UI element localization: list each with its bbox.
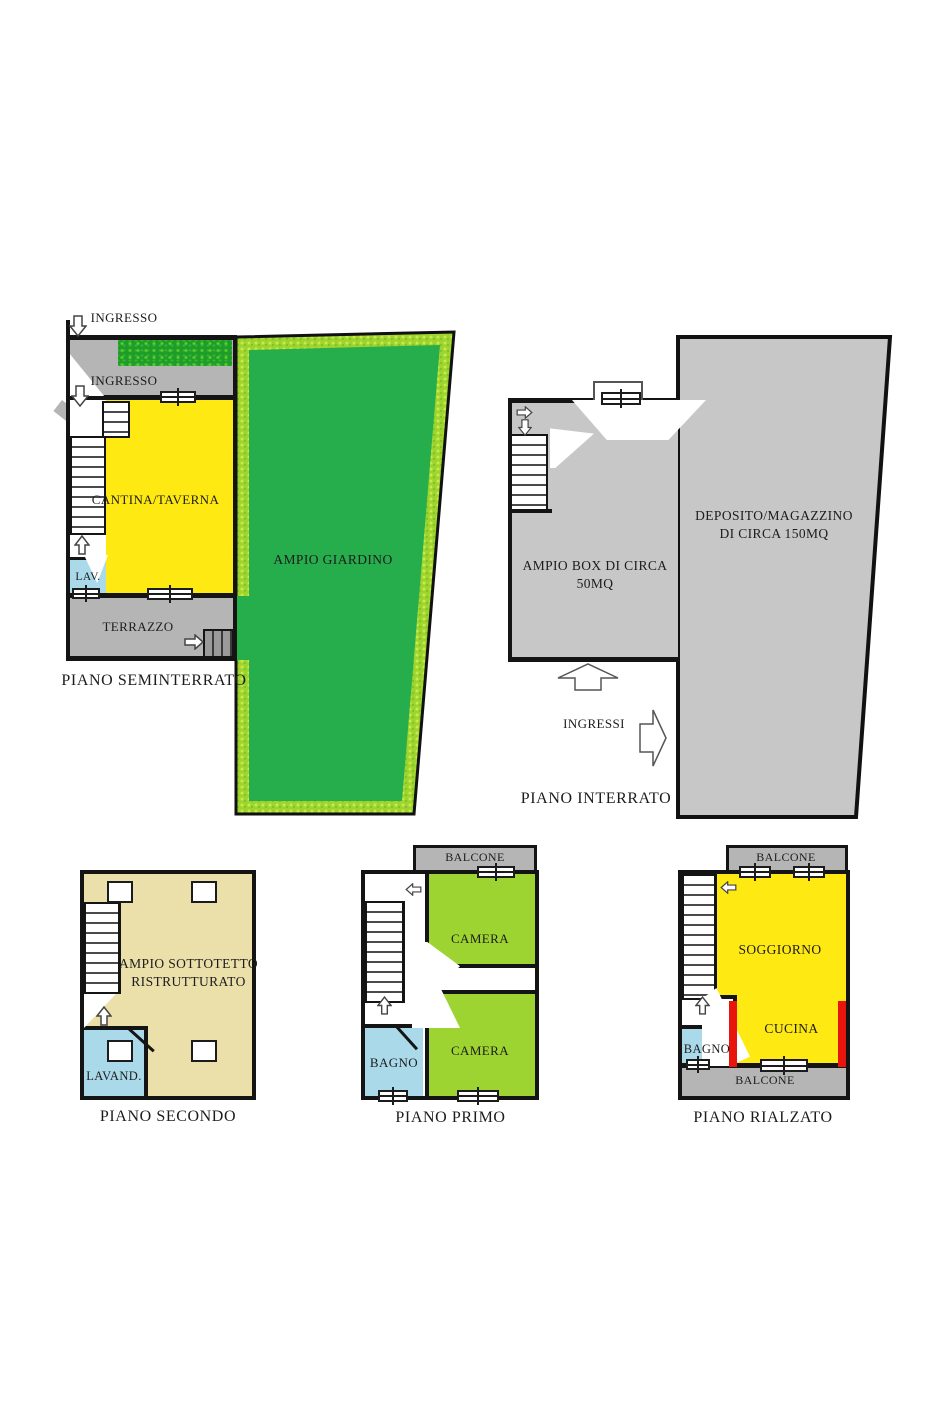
- hedge-strip: [118, 340, 232, 366]
- label-piano-secondo: PIANO SECONDO: [77, 1107, 259, 1128]
- room-giardino-label: AMPIO GIARDINO: [268, 551, 398, 569]
- room-deposito-label: DEPOSITO/MAGAZZINO DI CIRCA 150MQ: [688, 507, 860, 542]
- roof-window: [107, 1040, 133, 1062]
- balcone-rialzato-bottom-label: BALCONE: [700, 1073, 830, 1089]
- room-lav-label: LAV.: [66, 570, 110, 585]
- ingresso-lower-label: INGRESSO: [90, 373, 158, 390]
- ingressi-label: INGRESSI: [558, 716, 630, 733]
- window-symbol: [147, 588, 193, 600]
- staircase-box: [510, 434, 548, 511]
- staircase-main: [70, 436, 106, 535]
- terrace-garden-steps: [203, 629, 234, 658]
- staircase-upper-flight: [102, 401, 130, 438]
- stairs-up-arrow-icon: [695, 996, 710, 1015]
- room-camera-upper-label: CAMERA: [434, 931, 526, 948]
- window-symbol: [160, 391, 196, 403]
- window-symbol: [686, 1059, 710, 1070]
- room-bagno-primo-label: BAGNO: [363, 1055, 425, 1072]
- room-lavanderia-label: LAVAND.: [80, 1068, 148, 1084]
- label-piano-seminterrato: PIANO SEMINTERRATO: [60, 671, 248, 692]
- terrace-arrow-right-icon: [184, 634, 204, 650]
- window-symbol: [477, 866, 515, 878]
- room-camera-lower-label: CAMERA: [434, 1043, 526, 1060]
- deposito-area: [672, 329, 896, 821]
- room-bagno-rialzato-label: BAGNO: [676, 1041, 738, 1057]
- roof-window: [107, 881, 133, 903]
- balcony-arrow-left-icon: [405, 883, 422, 896]
- room-soggiorno-label: SOGGIORNO: [718, 941, 842, 959]
- stairs-up-arrow-icon: [74, 535, 90, 555]
- roof-window: [191, 1040, 217, 1062]
- ingresso-lower-arrow-down-icon: [71, 385, 89, 407]
- garden-area: [233, 329, 459, 817]
- window-symbol: [760, 1059, 808, 1072]
- label-piano-interrato: PIANO INTERRATO: [512, 789, 680, 810]
- room-sottotetto-label: AMPIO SOTTOTETTO RISTRUTTURATO: [106, 955, 271, 990]
- box-arrow-right-icon: [516, 406, 533, 419]
- entry-arrow-right-icon: [638, 708, 668, 768]
- window-symbol: [457, 1090, 499, 1102]
- window-symbol: [601, 392, 641, 405]
- stairs-up-arrow-icon: [96, 1006, 112, 1026]
- staircase-rialzato: [682, 874, 717, 1000]
- room-box-label: AMPIO BOX DI CIRCA 50MQ: [512, 557, 678, 592]
- balcone-primo-label: BALCONE: [427, 850, 523, 866]
- room-cantina-label: CANTINA/TAVERNA: [88, 492, 223, 509]
- balcony-arrow-left-icon: [720, 881, 737, 894]
- entry-arrow-up-icon: [556, 662, 620, 692]
- ingresso-top-label: INGRESSO: [90, 310, 158, 327]
- label-piano-primo: PIANO PRIMO: [363, 1108, 538, 1129]
- floorplan-sheet: AMPIO GIARDINO INGRESSO INGRESSO CANTINA…: [0, 0, 946, 1419]
- garden-shape: [233, 329, 459, 817]
- room-terrazzo-label: TERRAZZO: [88, 619, 188, 636]
- room-cucina-label: CUCINA: [737, 1020, 846, 1038]
- staircase-primo: [365, 901, 405, 1003]
- window-symbol: [739, 866, 771, 878]
- box-arrow-down-icon: [518, 419, 532, 436]
- balcone-rialzato-top-label: BALCONE: [736, 850, 836, 866]
- ingresso-top-arrow-down-icon: [69, 315, 87, 337]
- window-symbol: [378, 1090, 408, 1102]
- window-symbol: [793, 866, 825, 878]
- room-camera-upper: [429, 874, 535, 964]
- roof-window: [191, 881, 217, 903]
- label-piano-rialzato: PIANO RIALZATO: [672, 1108, 854, 1129]
- stairs-up-arrow-icon: [377, 996, 392, 1015]
- window-symbol: [72, 588, 100, 599]
